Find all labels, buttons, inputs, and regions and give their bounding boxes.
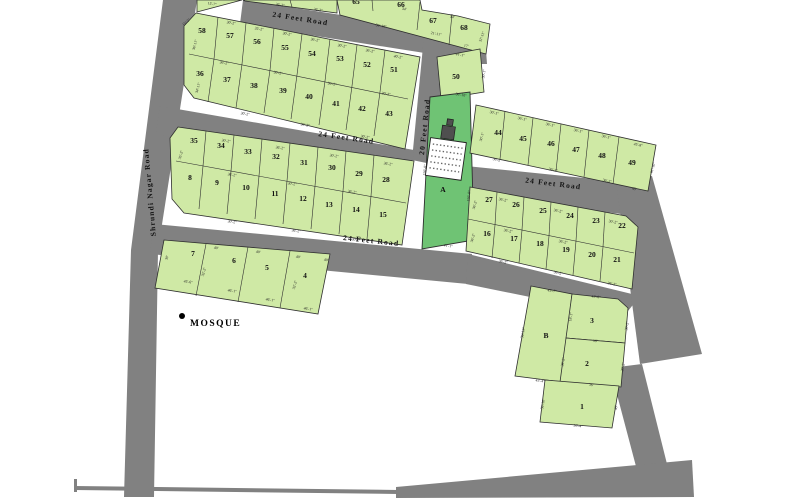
dimension-label: 30'-2": [227, 219, 237, 224]
plot-number-41: 41: [332, 99, 340, 108]
plot-number-10: 10: [242, 183, 250, 192]
dimension-label: 36'-2": [300, 122, 310, 128]
plot-number-50: 50: [452, 72, 460, 81]
building-plan-icon: [425, 138, 466, 181]
plot-number-31: 31: [300, 158, 308, 167]
plot-number-40: 40: [305, 92, 313, 101]
dimension-label: 40': [296, 255, 301, 260]
plot-number-29: 29: [355, 169, 363, 178]
plot-number-22: 22: [618, 221, 626, 230]
plot-number-32: 32: [272, 152, 280, 161]
plot-number-35: 35: [190, 136, 198, 145]
plot-number-52: 52: [363, 60, 371, 69]
plot-number-55: 55: [281, 43, 289, 52]
boundary-bottom-tick: [74, 479, 77, 492]
plot-number-2: 2: [585, 359, 589, 368]
plot-number-37: 37: [223, 75, 231, 84]
site-plan-svg: MOSQUE 24 Feet Road24 Feet Road24 Feet R…: [0, 0, 800, 500]
mosque-marker: MOSQUE: [179, 313, 241, 329]
dimension-label: 45'-4": [535, 378, 545, 383]
dimension-label: 41'-1": [443, 243, 453, 248]
mosque-dot-icon: [179, 313, 185, 319]
plot-number-51: 51: [390, 65, 398, 74]
mosque-label: MOSQUE: [190, 319, 241, 329]
plot-number-21: 21: [613, 255, 621, 264]
road-bottom-band: [396, 460, 694, 498]
plot-number-43: 43: [385, 109, 393, 118]
plot-number-3: 3: [590, 316, 594, 325]
dimension-label: 40': [214, 246, 219, 251]
plot-number-8: 8: [188, 173, 192, 182]
plot-number-58: 58: [198, 26, 206, 35]
plot-block-top-sliver-left[interactable]: [197, 0, 242, 12]
plot-number-42: 42: [358, 104, 366, 113]
plot-number-25: 25: [539, 206, 547, 215]
plot-number-38: 38: [250, 81, 258, 90]
building-dome-icon: [447, 119, 454, 126]
dimension-label: 36'-2": [291, 228, 301, 233]
dimension-label: 36': [593, 339, 598, 344]
dimension-label: 36': [589, 383, 594, 388]
plot-number-B: B: [543, 331, 548, 340]
plot-2[interactable]: [560, 338, 625, 387]
blocks-layer: [155, 0, 656, 428]
dimension-label: 36'-2": [607, 281, 617, 287]
plot-number-57: 57: [226, 31, 234, 40]
plot-number-49: 49: [628, 158, 636, 167]
plot-number-56: 56: [253, 37, 261, 46]
dimension-label: 30'-2": [624, 321, 630, 331]
plot-number-17: 17: [510, 234, 518, 243]
plot-number-1: 1: [580, 402, 584, 411]
plot-number-A: A: [440, 185, 446, 194]
dimension-label: 36'-2": [492, 157, 502, 163]
plot-number-5: 5: [265, 263, 269, 272]
dimension-label: 40': [324, 258, 329, 263]
plot-number-15: 15: [379, 210, 387, 219]
plot-number-7: 7: [191, 249, 195, 258]
dimension-label: 36'-2": [548, 167, 558, 173]
plot-number-12: 12: [299, 194, 307, 203]
boundary-bottom-line: [74, 486, 398, 494]
plot-number-44: 44: [494, 128, 502, 137]
plot-number-67: 67: [429, 16, 437, 25]
plot-number-6: 6: [232, 256, 236, 265]
plot-number-68: 68: [460, 23, 468, 32]
plot-number-33: 33: [244, 147, 252, 156]
plot-number-13: 13: [325, 200, 333, 209]
dimension-label: 36'-2": [553, 270, 563, 276]
dimension-label: 36'-4": [573, 423, 583, 428]
plot-number-4: 4: [303, 271, 307, 280]
plot-number-39: 39: [279, 86, 287, 95]
plot-number-47: 47: [572, 145, 580, 154]
plot-number-11: 11: [271, 189, 278, 198]
plot-number-18: 18: [536, 239, 544, 248]
plot-number-24: 24: [566, 211, 574, 220]
dimension-label: 30'-2": [240, 111, 250, 117]
building-minaret-icon: [441, 125, 456, 140]
plot-number-14: 14: [352, 205, 360, 214]
plot-number-46: 46: [547, 139, 555, 148]
plot-number-65: 65: [352, 0, 360, 6]
plot-number-48: 48: [598, 151, 606, 160]
plot-3[interactable]: [566, 294, 628, 343]
plot-number-23: 23: [592, 216, 600, 225]
plot-number-9: 9: [215, 178, 219, 187]
dimension-label: 40': [256, 250, 261, 255]
dimension-label: 45': [614, 405, 619, 410]
plot-number-36: 36: [196, 69, 204, 78]
plot-number-45: 45: [519, 134, 527, 143]
plot-number-30: 30: [328, 163, 336, 172]
plot-number-26: 26: [512, 200, 520, 209]
dimension-label: 30'-1": [481, 69, 487, 79]
site-plan-map: MOSQUE 24 Feet Road24 Feet Road24 Feet R…: [0, 0, 800, 500]
plot-number-28: 28: [382, 175, 390, 184]
plot-number-16: 16: [483, 229, 491, 238]
plot-number-19: 19: [562, 245, 570, 254]
plot-number-20: 20: [588, 250, 596, 259]
plot-number-54: 54: [308, 49, 316, 58]
plot-number-27: 27: [485, 195, 493, 204]
plot-number-53: 53: [336, 54, 344, 63]
